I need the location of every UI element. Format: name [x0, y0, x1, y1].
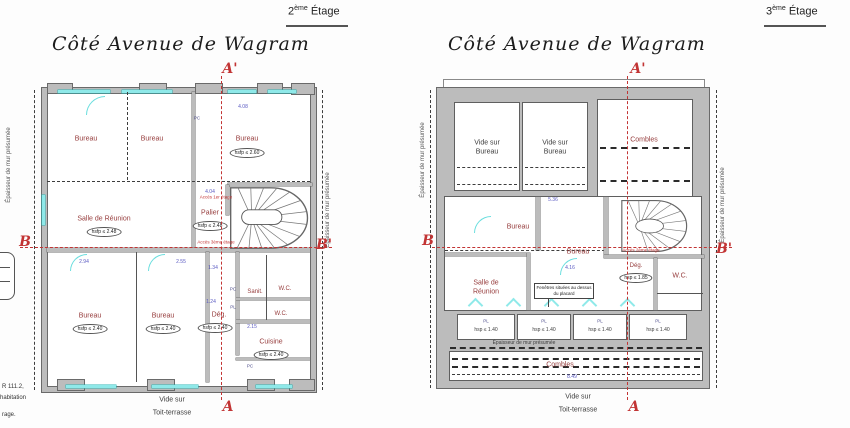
dimension: 4.08	[238, 104, 248, 110]
presumed-wall-dashed	[34, 90, 35, 390]
legend-fragment	[0, 252, 15, 300]
room-label-wc: W.C.	[279, 286, 292, 292]
left-plan-title: Côté Avenue de Wagram	[52, 33, 310, 55]
height-note: hsfp ≤ 2.60	[230, 148, 265, 158]
tag-pc: PC	[247, 364, 253, 369]
window	[256, 385, 292, 388]
placard-height-note: hsp ≤ 1.40	[588, 327, 611, 333]
text-fragment: rage.	[2, 412, 16, 418]
roof-line-dashed	[450, 347, 702, 349]
room-label-bureau: Bureau	[141, 136, 164, 143]
interior-wall	[527, 253, 530, 310]
stair-access-note: Accès 1er étage	[200, 194, 233, 199]
section-line-b	[432, 247, 732, 248]
section-label-b: B	[19, 234, 31, 250]
left-floor-word: Étage	[311, 6, 340, 18]
room-label-combles: Combles	[546, 362, 574, 369]
void-caption-line1: Vide sur	[159, 397, 185, 406]
room-label-bureau: Bureau	[79, 313, 102, 320]
window	[228, 90, 256, 93]
dimension: 5.36	[548, 197, 558, 203]
room-label-degagement: Dég.	[212, 312, 227, 319]
room-label-vide-sur-bureau: Vide sur Bureau	[466, 139, 508, 157]
right-floor-header: 3ème Étage	[766, 5, 818, 18]
interior-wall	[236, 252, 239, 355]
legend-line	[0, 281, 10, 282]
roof-line-dashed	[457, 167, 517, 168]
height-note: hsfp ≤ 2.40	[198, 323, 233, 333]
floorplan-sheet: { "colors": { "wall_gray": "#bcbcbc", "r…	[0, 0, 850, 428]
section-label-a: A	[223, 399, 234, 415]
window	[152, 385, 198, 388]
room-label-sanitaires: Sanit.	[247, 289, 262, 295]
roof-line-dashed	[600, 147, 690, 149]
window	[122, 90, 172, 93]
stair-access-note: Accès 3ème étage	[197, 239, 234, 244]
section-line-a	[627, 76, 628, 400]
dimension: 1.24	[206, 299, 216, 305]
window	[42, 195, 45, 225]
left-floor-sup: ème	[294, 5, 308, 12]
section-line-b	[20, 247, 332, 248]
placard-height-note: hsp ≤ 1.40	[646, 327, 669, 333]
interior-wall	[206, 252, 209, 382]
text-fragment: R 111.2,	[2, 384, 24, 390]
void-caption-line1: Vide sur	[565, 394, 591, 403]
partition	[266, 255, 267, 320]
room-label-salle-de-reunion: Salle de Réunion	[77, 216, 130, 223]
room-label-salle-de-reunion: Salle de Réunion	[464, 279, 508, 297]
room-label-bureau: Bureau	[507, 224, 530, 231]
room-label-combles: Combles	[630, 137, 658, 144]
wall-pier	[290, 380, 314, 390]
window	[66, 385, 116, 388]
legend-line	[0, 267, 10, 268]
height-note: hsfp ≤ 2.48	[193, 221, 228, 231]
left-floor-underline	[286, 25, 348, 27]
room-label-vide-sur-bureau: Vide sur Bureau	[534, 139, 576, 157]
window	[58, 90, 110, 93]
height-note: hsfp ≤ 2.40	[146, 324, 181, 334]
partition	[657, 293, 703, 294]
tag-pc: PC	[194, 116, 200, 121]
roof-line-dashed	[457, 184, 517, 185]
interior-wall	[654, 258, 657, 310]
wall-thickness-note-bottom: Épaisseur de mur présumée	[493, 340, 556, 346]
roof-line-dashed	[452, 358, 700, 360]
room-label-wc: W.C.	[275, 311, 288, 317]
roof-line-dashed	[525, 184, 585, 185]
section-label-a-prime: A'	[222, 61, 237, 77]
height-note: hsfp ≤ 2.40	[73, 324, 108, 334]
interior-wall	[445, 253, 530, 256]
wall-thickness-note-left: Épaisseur de mur présumée	[420, 122, 426, 197]
wall-thickness-note-left: Épaisseur de mur présumée	[6, 127, 12, 202]
partition	[136, 252, 137, 382]
section-label-b-prime: B'	[716, 241, 732, 257]
room-label-bureau: Bureau	[152, 313, 175, 320]
tag-pl: PL	[230, 305, 236, 310]
interior-wall	[236, 320, 310, 323]
room-label-bureau: Bureau	[75, 136, 98, 143]
section-label-a-prime: A'	[630, 61, 645, 77]
partition-dashed	[127, 92, 128, 180]
dimension: 1.34	[208, 265, 218, 271]
room-label-wc: W.C.	[672, 273, 687, 280]
right-floor-sup: ème	[772, 5, 786, 12]
spiral-stair	[610, 199, 700, 253]
placard-height-note: hsp ≤ 1.40	[474, 327, 497, 333]
tag-pl: PL	[541, 319, 547, 324]
presumed-wall-dashed	[716, 90, 717, 388]
dimension: 2.55	[176, 259, 186, 265]
right-floor-word: Étage	[789, 6, 818, 18]
right-plan-title: Côté Avenue de Wagram	[448, 33, 706, 55]
room-label-cuisine: Cuisine	[259, 339, 282, 346]
note-fenetres: Fenêtres situées au dessus du placard	[534, 283, 594, 299]
window	[268, 90, 296, 93]
tag-pl: PL	[655, 319, 661, 324]
section-label-b: B	[422, 233, 434, 249]
height-note: hsp ≤ 1.85	[619, 273, 652, 283]
section-label-a: A	[629, 399, 640, 415]
tag-pl: PL	[483, 319, 489, 324]
wall-pier	[196, 84, 222, 93]
roof-line-dashed	[600, 180, 690, 182]
room-label-bureau: Bureau	[236, 136, 259, 143]
interior-wall	[536, 197, 540, 250]
text-fragment: habitation	[0, 395, 26, 401]
roof-line-dashed	[452, 366, 700, 368]
placard-height-note: hsp ≤ 1.40	[532, 327, 555, 333]
dimension: 4.16	[565, 265, 575, 271]
room-label-degagement: Dég.	[630, 263, 643, 269]
interior-wall	[236, 298, 310, 300]
dimension: 2.94	[79, 259, 89, 265]
height-note: hsfp ≤ 2.48	[87, 227, 122, 237]
left-floor-header: 2ème Étage	[288, 5, 340, 18]
dimension: 2.15	[247, 324, 257, 330]
tag-pl: PL	[597, 319, 603, 324]
partition-dashed	[47, 181, 310, 182]
room-label-bureau: Bureau	[567, 249, 590, 256]
section-line-a	[221, 76, 222, 400]
void-caption-line2: Toit-terrasse	[153, 410, 192, 419]
wall-thickness-note-right: Épaisseur de mur présumée	[720, 167, 726, 242]
spiral-stair	[228, 186, 312, 250]
right-floor-underline	[764, 25, 826, 27]
void-caption-line2: Toit-terrasse	[559, 407, 598, 416]
dimension: 8.49	[567, 374, 577, 380]
section-label-b-prime: B'	[316, 237, 332, 253]
roof-line-dashed	[525, 167, 585, 168]
height-note: hsfp ≤ 2.40	[254, 350, 289, 360]
tag-pc: PC	[230, 287, 236, 292]
room-label-palier: Palier	[201, 210, 219, 217]
dimension: 4.04	[205, 189, 215, 195]
